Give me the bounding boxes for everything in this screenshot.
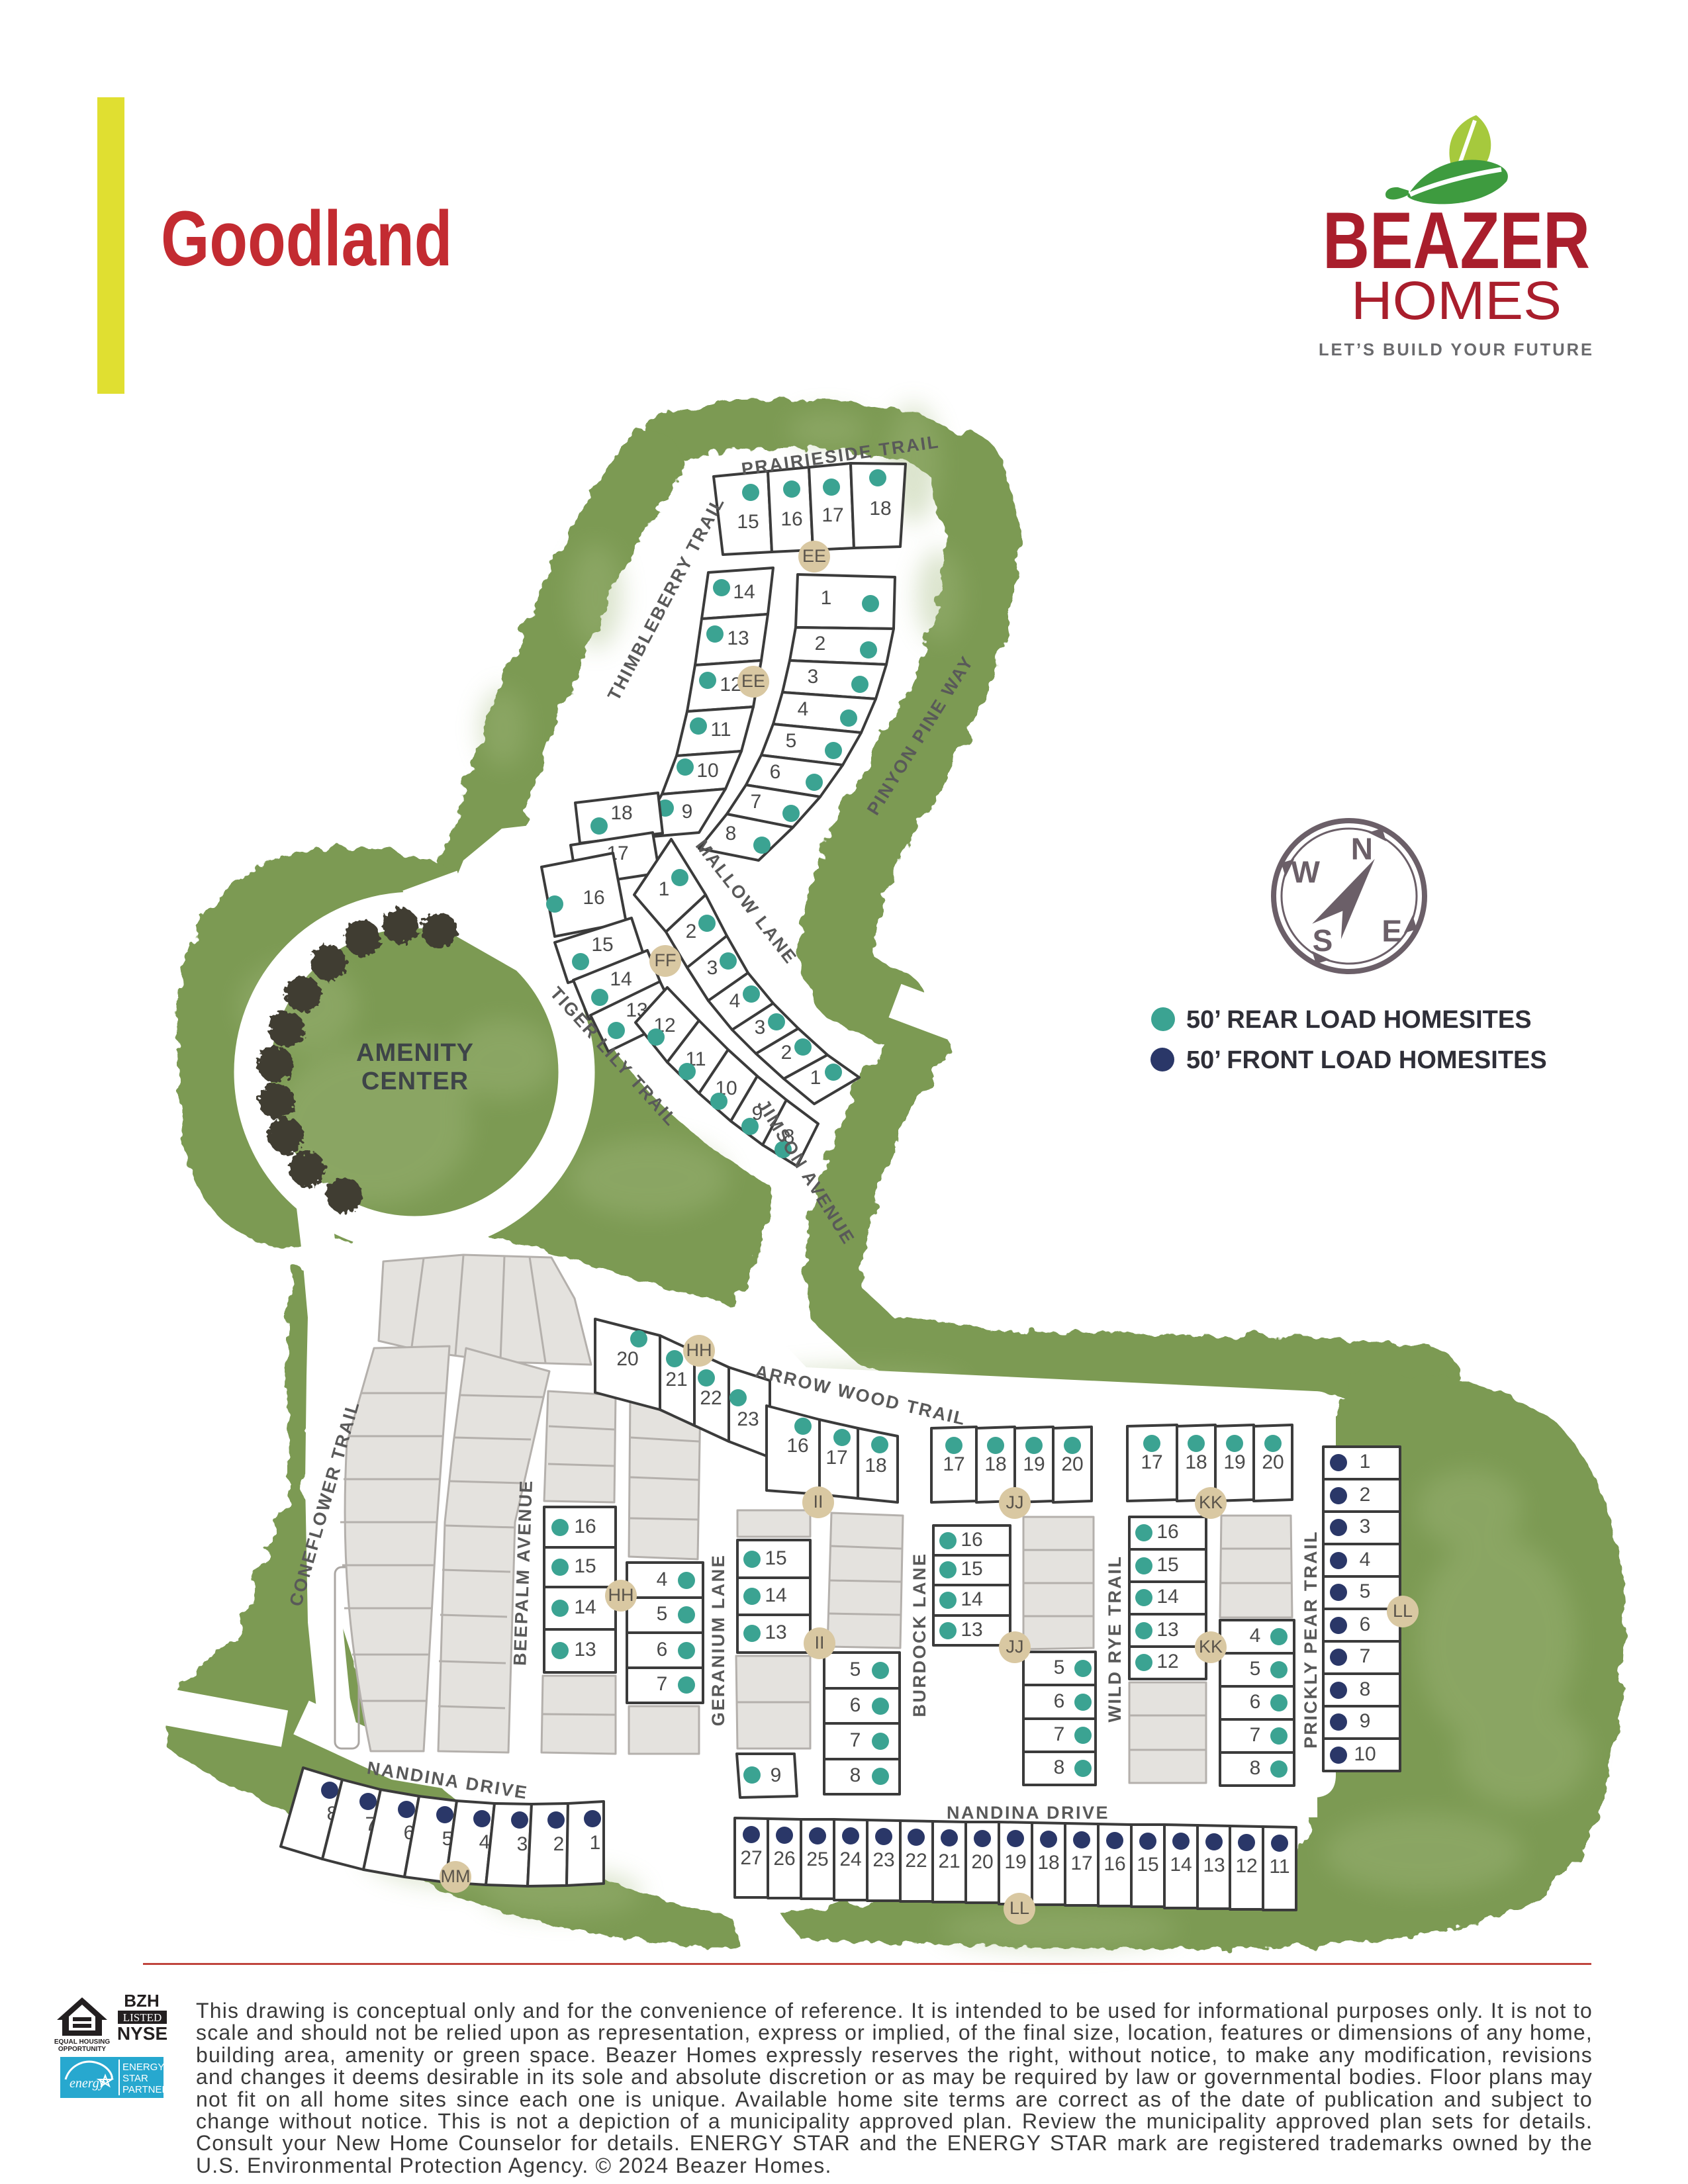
svg-text:LISTED: LISTED: [123, 2011, 162, 2024]
svg-text:26: 26: [773, 1848, 795, 1870]
svg-text:6: 6: [850, 1694, 861, 1716]
svg-text:7: 7: [1360, 1645, 1371, 1667]
svg-text:5: 5: [850, 1659, 861, 1680]
svg-text:14: 14: [610, 968, 632, 990]
svg-text:LL: LL: [1393, 1601, 1413, 1621]
svg-text:6: 6: [770, 761, 781, 783]
svg-text:14: 14: [733, 581, 755, 603]
svg-text:2: 2: [781, 1042, 792, 1064]
svg-text:10: 10: [696, 760, 718, 782]
svg-text:50’ FRONT LOAD HOMESITES: 50’ FRONT LOAD HOMESITES: [1186, 1046, 1547, 1074]
svg-text:1: 1: [821, 587, 832, 609]
svg-text:18: 18: [984, 1453, 1006, 1475]
svg-text:7: 7: [850, 1729, 861, 1751]
svg-text:LL: LL: [1009, 1898, 1029, 1918]
svg-text:17: 17: [943, 1453, 964, 1475]
svg-text:20: 20: [1262, 1451, 1284, 1473]
svg-text:13: 13: [765, 1621, 786, 1643]
svg-text:13: 13: [727, 627, 749, 649]
svg-text:W: W: [1291, 855, 1320, 889]
svg-text:5: 5: [786, 730, 797, 752]
svg-text:12: 12: [1156, 1651, 1178, 1672]
svg-text:20: 20: [616, 1348, 638, 1370]
svg-text:16: 16: [780, 508, 802, 530]
svg-text:LET’S BUILD YOUR FUTURE: LET’S BUILD YOUR FUTURE: [1319, 340, 1594, 359]
svg-text:3: 3: [1360, 1516, 1371, 1537]
svg-text:9: 9: [682, 801, 693, 823]
svg-text:6: 6: [1250, 1691, 1261, 1713]
svg-text:12: 12: [1235, 1855, 1257, 1877]
svg-text:JJ: JJ: [1006, 1637, 1024, 1657]
svg-text:CENTER: CENTER: [361, 1068, 469, 1095]
svg-text:8: 8: [1054, 1756, 1065, 1778]
svg-text:1: 1: [1360, 1451, 1371, 1473]
svg-text:PARTNER: PARTNER: [122, 2084, 164, 2095]
svg-text:16: 16: [961, 1529, 982, 1551]
svg-text:10: 10: [1354, 1743, 1376, 1765]
svg-text:EE: EE: [741, 671, 765, 691]
svg-text:9: 9: [771, 1764, 782, 1786]
svg-text:7: 7: [751, 791, 762, 813]
svg-text:2: 2: [686, 921, 697, 942]
svg-text:energy: energy: [70, 2076, 105, 2091]
svg-text:EE: EE: [802, 546, 826, 566]
svg-text:16: 16: [786, 1435, 808, 1457]
svg-text:5: 5: [1250, 1658, 1261, 1680]
svg-text:5: 5: [657, 1603, 668, 1625]
svg-text:BURDOCK LANE: BURDOCK LANE: [910, 1553, 929, 1717]
svg-text:17: 17: [821, 504, 843, 526]
svg-text:16: 16: [1103, 1853, 1125, 1875]
svg-text:FF: FF: [655, 950, 677, 970]
svg-text:13: 13: [1203, 1854, 1225, 1876]
svg-text:13: 13: [574, 1639, 596, 1661]
svg-text:EQUAL HOUSING: EQUAL HOUSING: [54, 2038, 110, 2046]
svg-text:8: 8: [850, 1764, 861, 1786]
svg-text:1: 1: [659, 878, 670, 900]
svg-text:17: 17: [825, 1447, 847, 1469]
svg-text:8: 8: [1250, 1757, 1261, 1779]
svg-text:5: 5: [1054, 1657, 1065, 1678]
svg-text:HH: HH: [608, 1585, 634, 1605]
svg-text:23: 23: [872, 1849, 894, 1871]
svg-text:3: 3: [808, 666, 819, 688]
svg-text:5: 5: [1360, 1580, 1371, 1602]
svg-text:4: 4: [657, 1569, 668, 1590]
svg-text:STAR: STAR: [122, 2073, 148, 2084]
svg-text:27: 27: [740, 1847, 762, 1869]
svg-text:8: 8: [1360, 1678, 1371, 1700]
svg-text:15: 15: [961, 1558, 982, 1580]
svg-text:15: 15: [591, 934, 613, 956]
svg-text:II: II: [814, 1633, 824, 1653]
svg-text:19: 19: [1023, 1453, 1045, 1475]
svg-text:18: 18: [1037, 1852, 1059, 1874]
svg-text:MM: MM: [441, 1866, 471, 1886]
svg-text:9: 9: [1360, 1710, 1371, 1732]
svg-text:OPPORTUNITY: OPPORTUNITY: [58, 2046, 107, 2053]
svg-text:4: 4: [1360, 1549, 1371, 1570]
svg-text:15: 15: [1156, 1554, 1178, 1576]
svg-text:16: 16: [574, 1516, 596, 1537]
svg-text:14: 14: [961, 1588, 982, 1610]
svg-text:1: 1: [810, 1067, 821, 1089]
svg-text:19: 19: [1223, 1451, 1245, 1473]
svg-text:JJ: JJ: [1006, 1492, 1024, 1512]
svg-text:17: 17: [1141, 1451, 1162, 1473]
svg-text:16: 16: [583, 887, 604, 909]
svg-text:4: 4: [798, 698, 809, 720]
svg-text:15: 15: [737, 511, 759, 533]
svg-text:E: E: [1382, 913, 1402, 948]
svg-text:6: 6: [1360, 1614, 1371, 1635]
svg-text:50’ REAR LOAD HOMESITES: 50’ REAR LOAD HOMESITES: [1186, 1006, 1532, 1034]
svg-text:2: 2: [1360, 1484, 1371, 1506]
svg-text:NYSE: NYSE: [117, 2023, 167, 2044]
svg-text:KK: KK: [1199, 1637, 1223, 1657]
svg-text:BZH: BZH: [124, 1995, 159, 2011]
svg-text:16: 16: [1156, 1521, 1178, 1543]
svg-text:ENERGY: ENERGY: [122, 2062, 164, 2073]
svg-text:3: 3: [517, 1833, 528, 1855]
svg-text:PRICKLY PEAR TRAIL: PRICKLY PEAR TRAIL: [1301, 1530, 1321, 1749]
svg-text:4: 4: [1250, 1625, 1261, 1647]
svg-text:3: 3: [755, 1017, 766, 1038]
svg-text:WILD RYE TRAIL: WILD RYE TRAIL: [1105, 1555, 1125, 1723]
svg-text:KK: KK: [1199, 1492, 1223, 1512]
svg-text:18: 18: [1185, 1451, 1207, 1473]
svg-text:3: 3: [707, 957, 718, 979]
svg-text:20: 20: [1061, 1453, 1083, 1475]
svg-text:NANDINA DRIVE: NANDINA DRIVE: [947, 1803, 1109, 1823]
svg-text:14: 14: [574, 1596, 596, 1618]
svg-text:18: 18: [610, 802, 632, 824]
svg-text:15: 15: [765, 1547, 786, 1569]
svg-text:7: 7: [657, 1673, 668, 1695]
svg-text:13: 13: [1156, 1619, 1178, 1641]
svg-text:14: 14: [765, 1584, 786, 1606]
svg-text:N: N: [1351, 832, 1373, 866]
svg-text:11: 11: [710, 719, 731, 741]
svg-text:6: 6: [1054, 1690, 1065, 1712]
svg-text:S: S: [1313, 923, 1333, 958]
svg-text:2: 2: [553, 1833, 565, 1855]
svg-text:7: 7: [1054, 1723, 1065, 1745]
svg-text:11: 11: [1269, 1856, 1289, 1878]
svg-text:21: 21: [938, 1850, 960, 1872]
svg-text:14: 14: [1170, 1854, 1192, 1876]
svg-text:2: 2: [815, 633, 826, 655]
svg-text:4: 4: [729, 990, 741, 1012]
svg-text:20: 20: [971, 1851, 993, 1873]
svg-text:18: 18: [865, 1455, 886, 1477]
svg-text:1: 1: [590, 1832, 601, 1854]
svg-text:HOMES: HOMES: [1351, 271, 1562, 331]
svg-text:14: 14: [1156, 1586, 1178, 1608]
svg-text:17: 17: [1070, 1852, 1092, 1874]
svg-text:AMENITY: AMENITY: [356, 1039, 474, 1067]
svg-text:23: 23: [737, 1408, 759, 1430]
svg-text:22: 22: [905, 1850, 927, 1872]
svg-text:7: 7: [1250, 1724, 1261, 1746]
svg-text:GERANIUM LANE: GERANIUM LANE: [708, 1554, 728, 1727]
svg-text:13: 13: [961, 1619, 982, 1641]
svg-text:15: 15: [1137, 1854, 1158, 1876]
svg-text:25: 25: [806, 1848, 828, 1870]
svg-text:15: 15: [574, 1555, 596, 1577]
svg-text:6: 6: [657, 1639, 668, 1661]
svg-text:24: 24: [839, 1848, 861, 1870]
svg-text:18: 18: [869, 498, 891, 520]
svg-text:22: 22: [700, 1387, 722, 1409]
svg-text:8: 8: [726, 823, 737, 844]
svg-text:II: II: [813, 1492, 823, 1512]
svg-text:HH: HH: [686, 1340, 712, 1360]
svg-text:21: 21: [665, 1369, 687, 1390]
svg-text:19: 19: [1004, 1851, 1026, 1873]
